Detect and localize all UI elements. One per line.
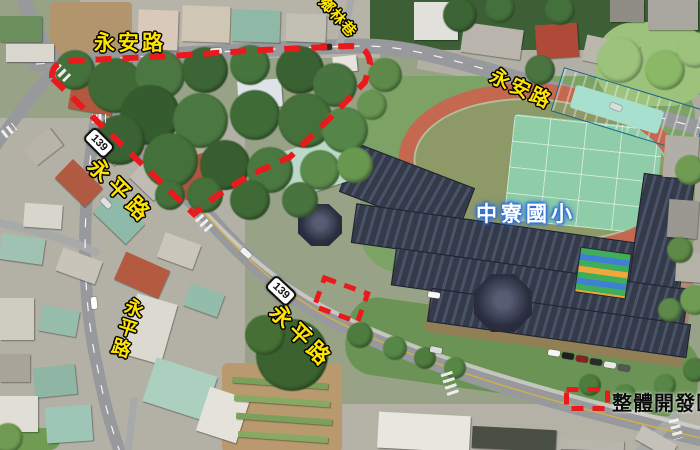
legend-label: 整體開發區: [612, 387, 700, 416]
development-zone-sub-parcel: [314, 278, 367, 322]
road-label-yongan-top: 永安路: [94, 27, 166, 57]
aerial-map: 永安路 永安路 鄉林巷 永平路 永平路 永平路 139 139 中寮國小 整體開…: [0, 0, 700, 450]
development-zone-annotation: [0, 0, 700, 450]
legend-swatch: [567, 390, 608, 409]
school-name-label: 中寮國小: [476, 198, 576, 228]
